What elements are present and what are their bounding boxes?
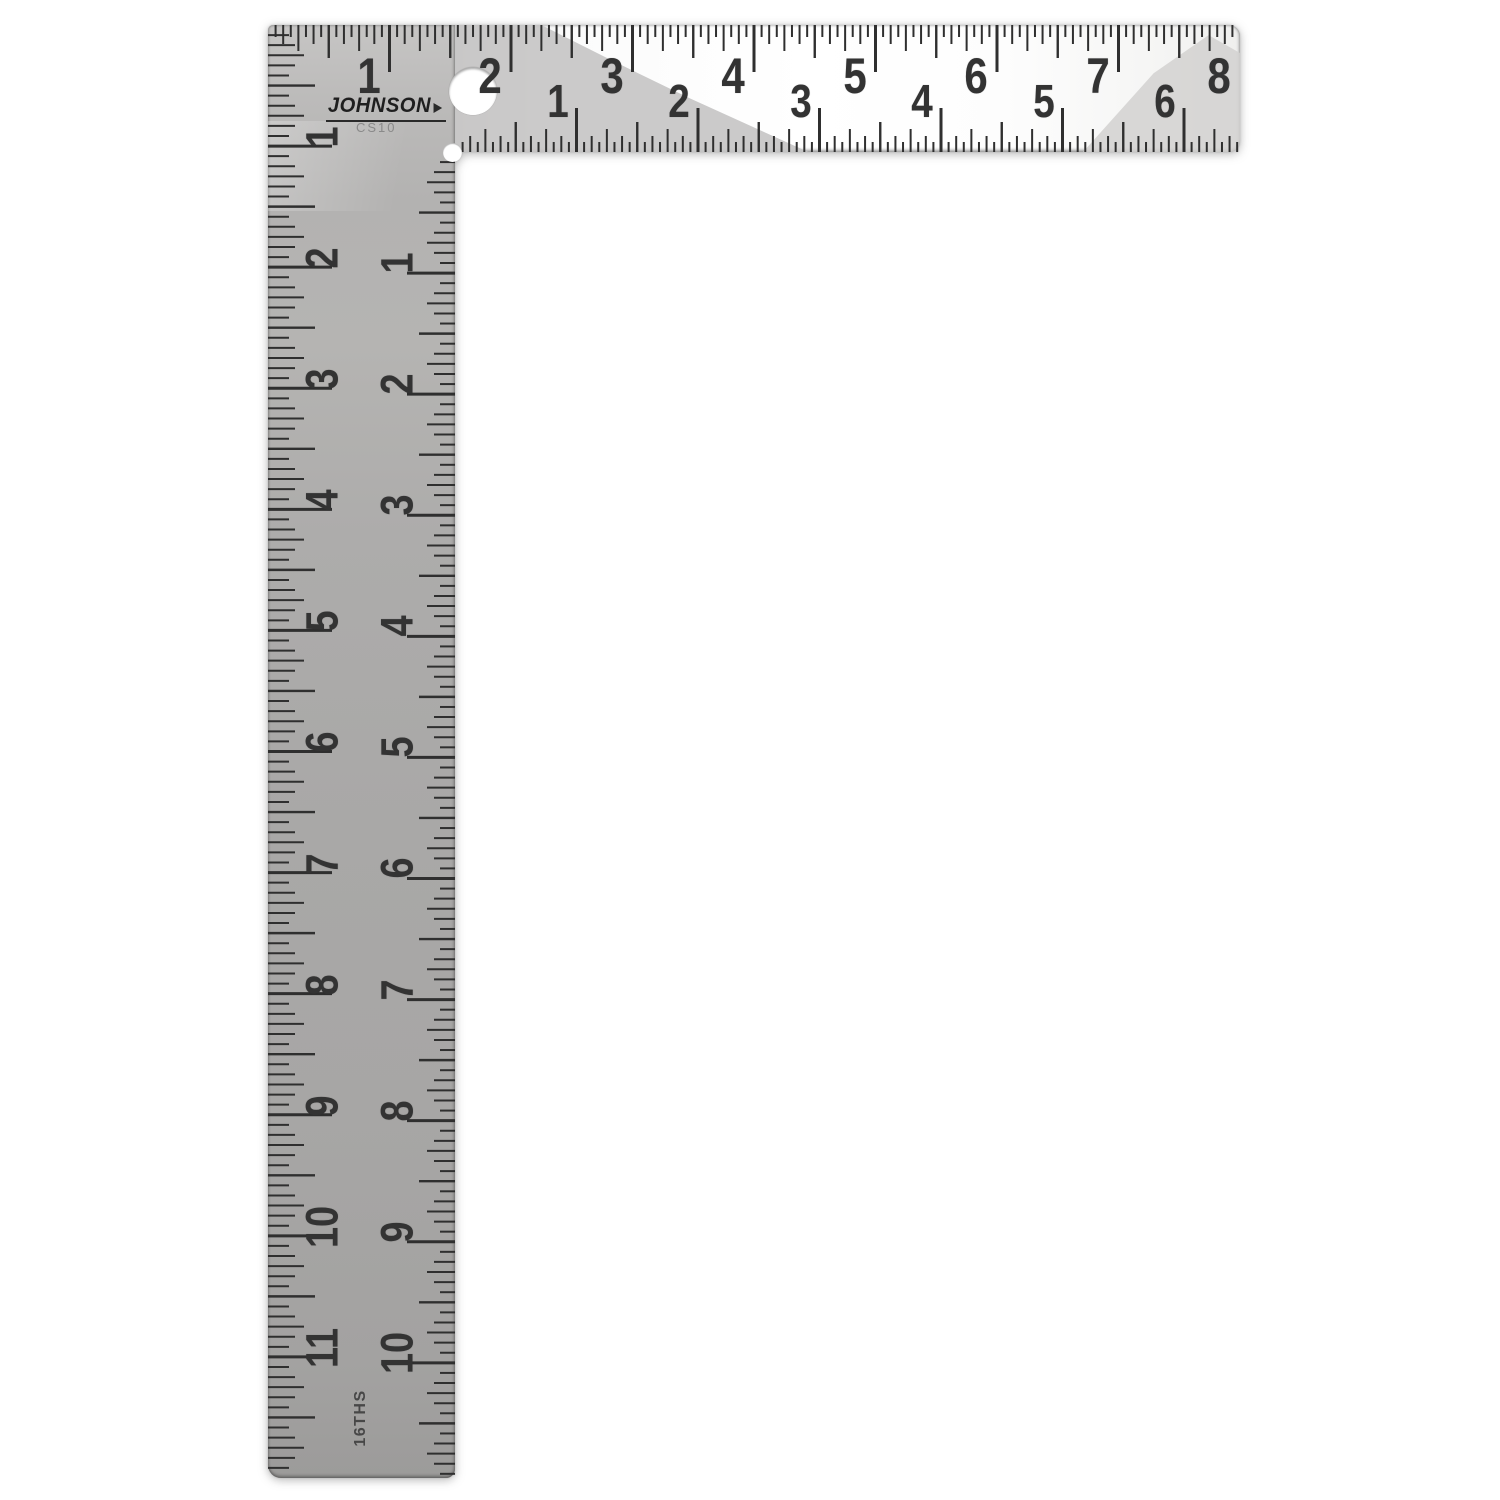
scale-number-blade_outer-2: 2 <box>300 248 345 269</box>
brand-logo: JOHNSON <box>326 94 446 122</box>
scale-number-blade_outer-5: 5 <box>300 611 345 632</box>
scale-number-tongue_outer-6: 6 <box>964 51 987 101</box>
scale-number-blade_inner-10: 10 <box>375 1332 420 1374</box>
model-text: CS10 <box>356 120 397 135</box>
scale-number-blade_inner-4: 4 <box>375 616 420 637</box>
scale-number-tongue_outer-1: 1 <box>357 51 380 101</box>
scale-number-tongue_inner-5: 5 <box>1033 78 1054 124</box>
scale-number-blade_inner-8: 8 <box>375 1100 420 1121</box>
scale-number-blade_outer-8: 8 <box>300 974 345 995</box>
scale-number-tongue_outer-8: 8 <box>1207 51 1230 101</box>
scale-number-blade_outer-9: 9 <box>300 1095 345 1116</box>
scale-number-blade_outer-10: 10 <box>300 1206 345 1248</box>
scale-number-tongue_inner-6: 6 <box>1154 78 1175 124</box>
scale-number-blade_outer-1: 1 <box>300 127 345 148</box>
scale-number-blade_inner-6: 6 <box>375 858 420 879</box>
scale-number-tongue_inner-1: 1 <box>547 78 568 124</box>
scale-number-tongue_outer-7: 7 <box>1086 51 1109 101</box>
scale-number-blade_outer-11: 11 <box>300 1328 345 1368</box>
scale-number-blade_inner-2: 2 <box>375 374 420 395</box>
framing-square: JOHNSON CS10 16THS 123456781234561234567… <box>0 0 1500 1500</box>
framing-square-photo: JOHNSON CS10 16THS 123456781234561234567… <box>0 0 1500 1500</box>
graduation-stamp: 16THS <box>352 1389 370 1446</box>
scale-number-blade_inner-1: 1 <box>375 253 420 274</box>
scale-number-blade_outer-7: 7 <box>300 853 345 874</box>
scale-number-tongue_inner-2: 2 <box>668 78 689 124</box>
scale-number-tongue_inner-4: 4 <box>911 78 932 124</box>
ruler-ticks <box>0 0 1500 1500</box>
scale-number-blade_outer-6: 6 <box>300 732 345 753</box>
scale-number-blade_inner-9: 9 <box>375 1221 420 1242</box>
scale-number-blade_outer-4: 4 <box>300 490 345 511</box>
corner-notch <box>443 143 462 162</box>
scale-number-blade_inner-3: 3 <box>375 495 420 516</box>
scale-number-tongue_outer-2: 2 <box>478 51 501 101</box>
scale-number-blade_outer-3: 3 <box>300 369 345 390</box>
scale-number-blade_inner-7: 7 <box>375 979 420 1000</box>
scale-number-tongue_inner-3: 3 <box>790 78 811 124</box>
scale-number-tongue_outer-5: 5 <box>843 51 866 101</box>
scale-number-tongue_outer-3: 3 <box>600 51 623 101</box>
scale-number-tongue_outer-4: 4 <box>721 51 744 101</box>
brand-flag-icon <box>434 103 443 113</box>
scale-number-blade_inner-5: 5 <box>375 737 420 758</box>
